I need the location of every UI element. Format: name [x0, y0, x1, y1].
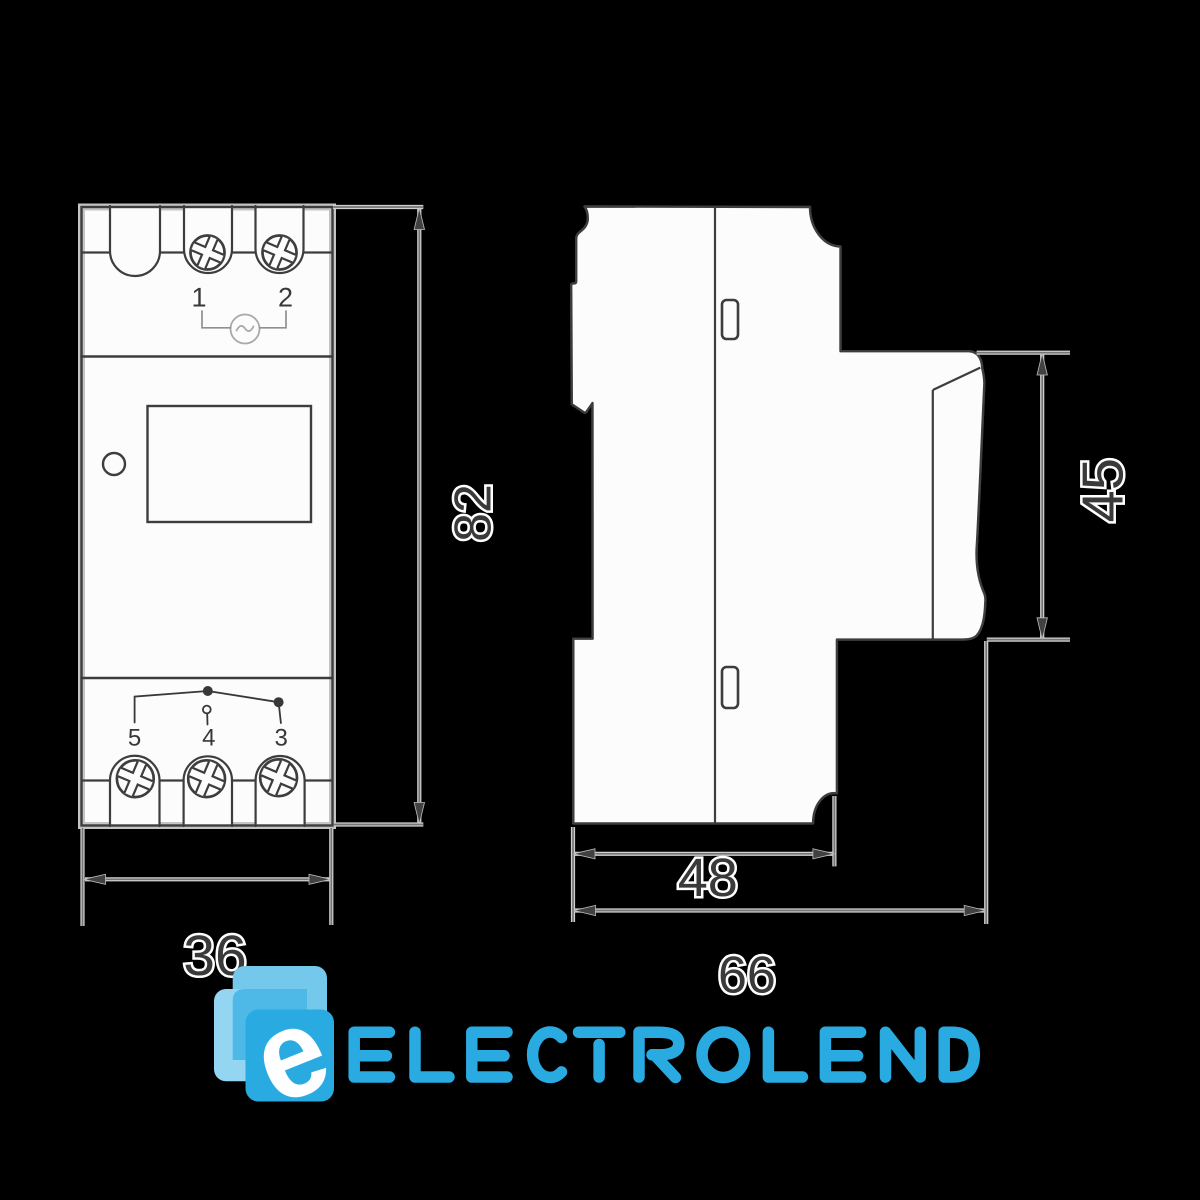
- svg-text:48: 48: [678, 848, 738, 908]
- svg-text:5: 5: [128, 725, 141, 752]
- svg-text:82: 82: [445, 484, 503, 542]
- svg-text:66: 66: [718, 947, 776, 1005]
- svg-text:4: 4: [202, 725, 215, 752]
- svg-text:3: 3: [275, 725, 288, 752]
- svg-text:1: 1: [191, 283, 206, 313]
- svg-text:45: 45: [1071, 458, 1136, 523]
- svg-text:2: 2: [278, 283, 293, 313]
